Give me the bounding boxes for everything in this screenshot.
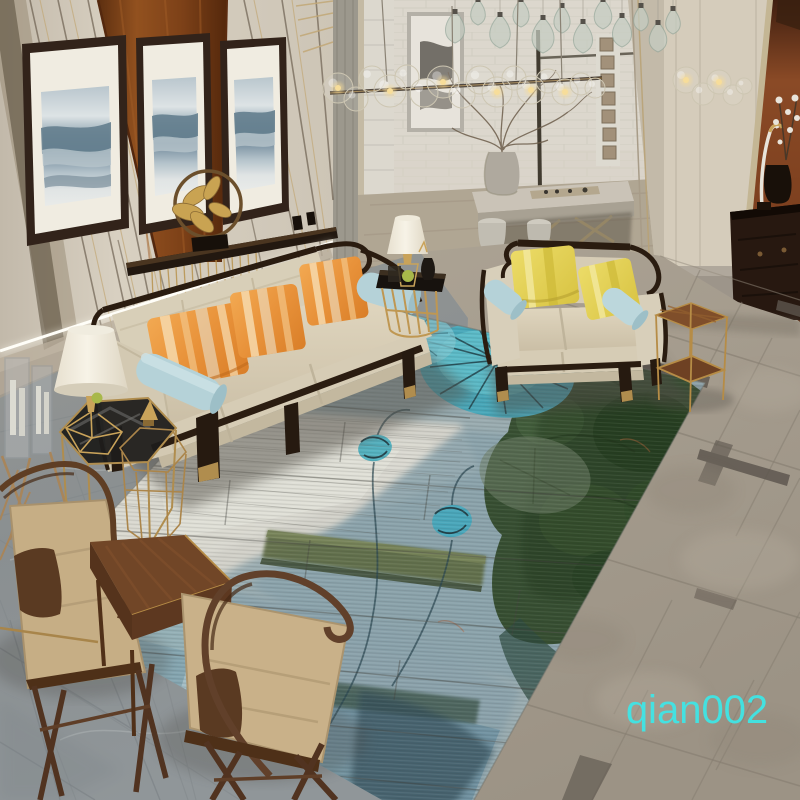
svg-text:qian002: qian002 [626, 688, 768, 732]
